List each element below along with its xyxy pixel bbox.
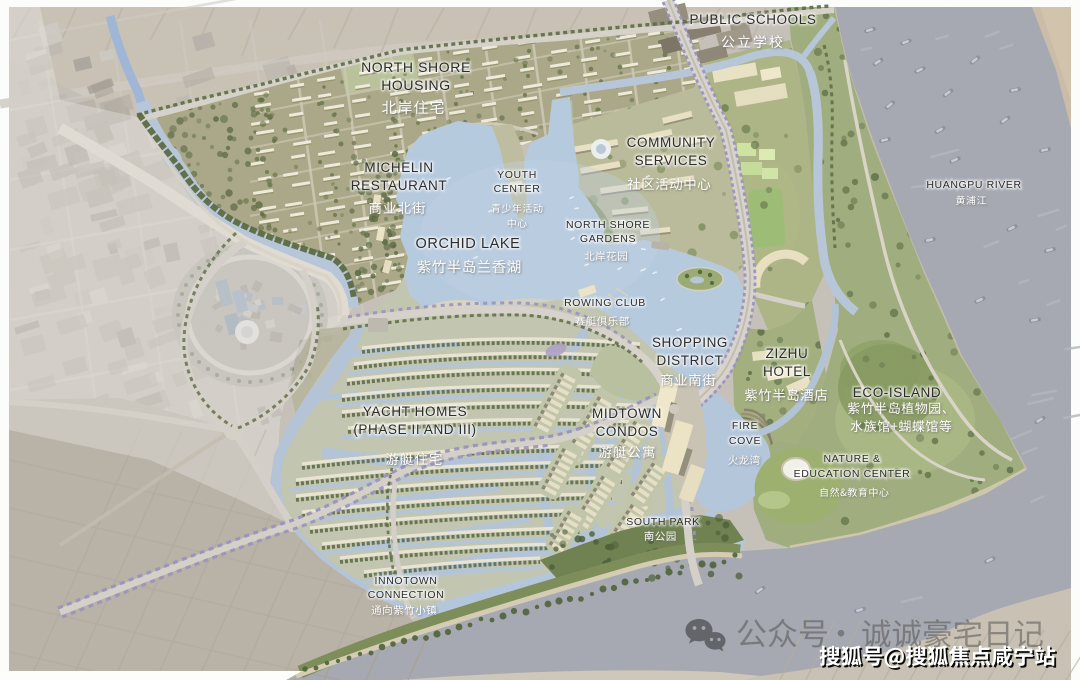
svg-text:ROWING CLUB: ROWING CLUB: [564, 297, 646, 309]
svg-text:CONNECTION: CONNECTION: [368, 589, 445, 601]
svg-text:FIRE: FIRE: [732, 420, 758, 432]
svg-text:SOUTH PARK: SOUTH PARK: [626, 516, 699, 528]
svg-text:COMMUNITY: COMMUNITY: [627, 135, 716, 150]
svg-text:DISTRICT: DISTRICT: [656, 353, 723, 368]
svg-text:HOUSING: HOUSING: [381, 77, 451, 93]
svg-text:(PHASE II AND III): (PHASE II AND III): [353, 422, 476, 437]
svg-text:MIDTOWN: MIDTOWN: [592, 406, 662, 421]
svg-text:MICHELIN: MICHELIN: [364, 160, 433, 175]
svg-text:YOUTH: YOUTH: [497, 169, 537, 181]
svg-text:NORTH SHORE: NORTH SHORE: [566, 219, 650, 231]
svg-text:EDUCATION CENTER: EDUCATION CENTER: [794, 468, 911, 480]
svg-text:SHOPPING: SHOPPING: [652, 335, 728, 350]
svg-text:COVE: COVE: [729, 435, 761, 447]
svg-text:NORTH SHORE: NORTH SHORE: [361, 59, 471, 75]
svg-text:YACHT HOMES: YACHT HOMES: [363, 404, 467, 419]
svg-text:ECO-ISLAND: ECO-ISLAND: [853, 385, 942, 400]
svg-text:PUBLIC SCHOOLS: PUBLIC SCHOOLS: [690, 12, 817, 27]
svg-text:NATURE &: NATURE &: [823, 453, 880, 465]
svg-text:CONDOS: CONDOS: [596, 424, 659, 439]
svg-text:GARDENS: GARDENS: [580, 233, 636, 245]
svg-text:ZIZHU: ZIZHU: [766, 346, 809, 361]
svg-text:ORCHID LAKE: ORCHID LAKE: [416, 236, 521, 252]
svg-text:CENTER: CENTER: [494, 183, 541, 195]
svg-text:HUANGPU RIVER: HUANGPU RIVER: [926, 179, 1021, 191]
svg-text:HOTEL: HOTEL: [763, 364, 811, 379]
svg-text:RESTAURANT: RESTAURANT: [351, 178, 448, 193]
svg-text:INNOTOWN: INNOTOWN: [375, 575, 438, 587]
svg-text:SERVICES: SERVICES: [635, 153, 708, 168]
